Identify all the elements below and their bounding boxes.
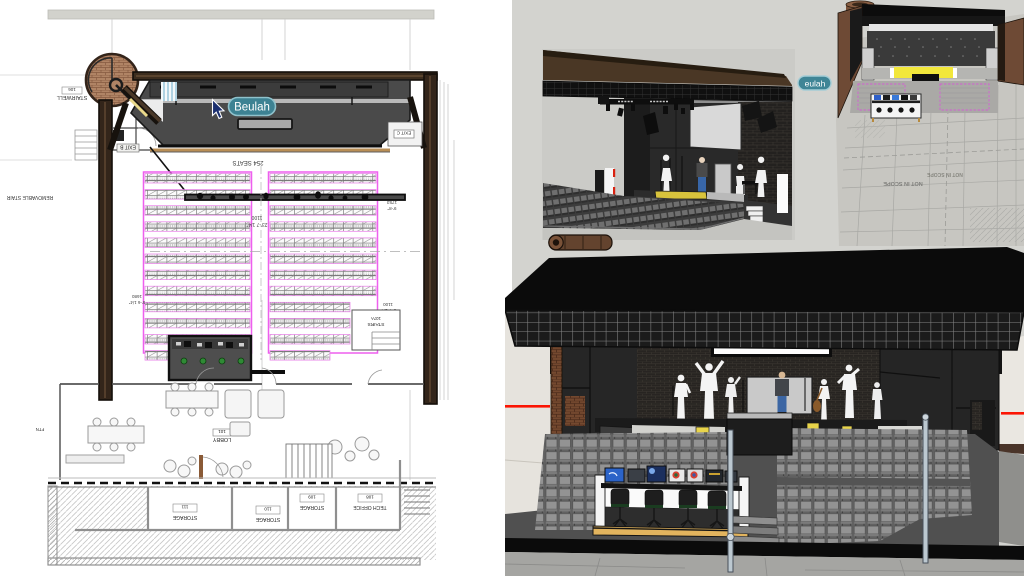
svg-text:NOT IN SCOPE: NOT IN SCOPE: [883, 180, 923, 186]
svg-text:101: 101: [218, 429, 226, 434]
svg-text:1753: 1753: [386, 200, 397, 205]
svg-text:9'-8": 9'-8": [387, 206, 396, 211]
svg-text:STORAGE: STORAGE: [172, 514, 197, 520]
svg-text:STAIRWELL: STAIRWELL: [57, 94, 88, 100]
svg-text:STORAGE: STORAGE: [255, 516, 280, 522]
svg-text:106: 106: [68, 87, 76, 92]
svg-text:254 SEATS: 254 SEATS: [233, 159, 264, 165]
svg-text:23'-7 1/4": 23'-7 1/4": [246, 221, 267, 227]
svg-text:TECH OFFICE: TECH OFFICE: [353, 504, 387, 510]
svg-text:108: 108: [366, 495, 374, 500]
svg-text:NOT IN SCOPE: NOT IN SCOPE: [926, 171, 963, 177]
svg-text:1680: 1680: [131, 294, 142, 299]
svg-text:1100: 1100: [383, 302, 393, 307]
svg-text:5'-6 1/4": 5'-6 1/4": [128, 300, 145, 305]
svg-text:Beulah: Beulah: [234, 102, 270, 114]
svg-text:109: 109: [308, 495, 316, 500]
svg-text:1100: 1100: [251, 214, 262, 220]
svg-text:EXIT B: EXIT B: [119, 144, 135, 150]
svg-text:LOBBY: LOBBY: [212, 436, 231, 442]
svg-text:FTN: FTN: [36, 427, 45, 432]
svg-text:111: 111: [181, 505, 188, 510]
svg-text:110: 110: [264, 507, 272, 512]
svg-text:107A: 107A: [371, 316, 381, 321]
svg-text:STORAGE: STORAGE: [299, 504, 324, 510]
svg-text:EXIT C: EXIT C: [396, 131, 411, 136]
svg-text:eulah: eulah: [805, 79, 826, 89]
svg-text:REMOVABLE STAIR: REMOVABLE STAIR: [6, 194, 53, 200]
